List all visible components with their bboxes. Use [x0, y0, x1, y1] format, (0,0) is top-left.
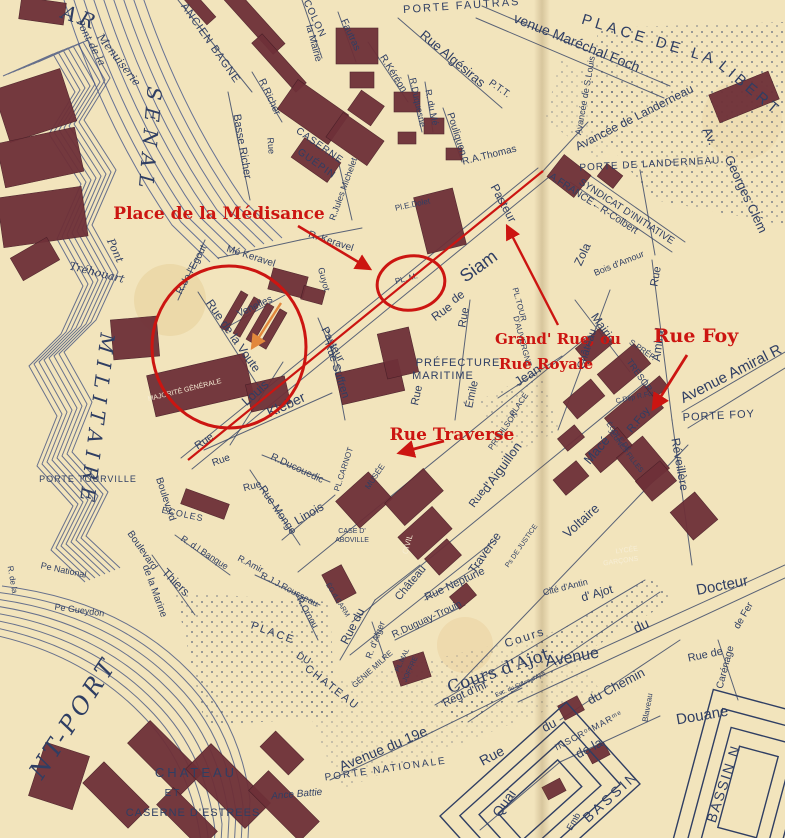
- map-label: ABOVILLE: [335, 537, 369, 544]
- map-label: CHATEAU: [155, 765, 237, 780]
- map-label: CASERNE D'ESTREES: [126, 807, 261, 819]
- annotation-place-de-la-medisance: Place de la Médisance: [113, 204, 325, 224]
- annotation-rue-foy: Rue Foy: [654, 325, 739, 347]
- building-block: [398, 132, 416, 144]
- map-label: CASE D': [338, 528, 365, 535]
- map-canvas: ARSENALMILITAIRENT-PORTTréhouartPontPont…: [0, 0, 785, 838]
- annotation-grand-rue-line1: Grand' Rue, ou: [495, 330, 621, 348]
- map-label: ET: [165, 788, 182, 799]
- fold-crease: [534, 0, 550, 838]
- map-label: PRÉFECTURE: [416, 356, 501, 369]
- brest-map: ARSENALMILITAIRENT-PORTTréhouartPontPont…: [0, 0, 785, 838]
- building-block: [350, 72, 374, 88]
- annotation-rue-traverse: Rue Traverse: [390, 425, 515, 445]
- map-label: PORTE TOURVILLE: [39, 474, 137, 484]
- map-label: MARITIME: [412, 370, 474, 382]
- map-label: Rue: [265, 137, 276, 154]
- annotation-grand-rue-line2: Rue Royale: [499, 355, 593, 373]
